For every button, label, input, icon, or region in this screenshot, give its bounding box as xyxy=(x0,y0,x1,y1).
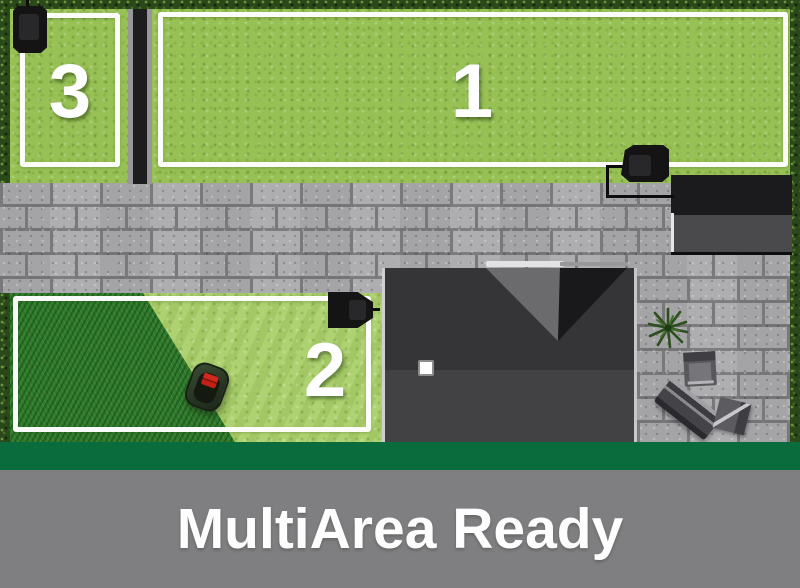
divider-wall xyxy=(128,0,152,184)
patio-chair xyxy=(683,351,717,387)
banner-title: MultiArea Ready xyxy=(177,496,624,562)
multiarea-marketing-graphic: 1 2 3 xyxy=(0,0,800,588)
hedge-left xyxy=(0,293,10,442)
garage-edge xyxy=(671,213,674,252)
brand-green-band xyxy=(0,442,800,470)
roof-edge xyxy=(634,268,637,442)
garage-roof-lower xyxy=(671,215,792,252)
station-panel xyxy=(629,155,651,176)
roof-lower-slope xyxy=(382,370,637,442)
chimney xyxy=(418,360,434,376)
roof-ridge-cap xyxy=(486,261,564,267)
house-roof xyxy=(382,268,637,442)
area-3-label: 3 xyxy=(49,54,91,130)
station-panel xyxy=(19,14,39,40)
charging-cable xyxy=(372,308,380,311)
area-2-label: 2 xyxy=(304,333,346,409)
garage-roof xyxy=(671,175,792,255)
roof-ridge-cap xyxy=(560,262,628,266)
potted-plant xyxy=(646,306,690,350)
chair-back xyxy=(683,351,715,362)
station-panel xyxy=(349,300,366,320)
hedge-top xyxy=(0,0,800,9)
charging-cable xyxy=(609,165,623,168)
garage-shadow xyxy=(671,252,792,255)
banner-bar: MultiArea Ready xyxy=(0,470,800,588)
roof-edge xyxy=(382,268,385,442)
area-1-charging-station xyxy=(621,145,669,182)
area-3-charging-station xyxy=(13,6,47,53)
charging-cable xyxy=(606,195,674,198)
charging-cable xyxy=(606,165,609,198)
hedge-left xyxy=(0,9,10,183)
chair-edge xyxy=(688,380,714,384)
area-1-label: 1 xyxy=(451,54,493,130)
chair-seat xyxy=(689,362,712,381)
